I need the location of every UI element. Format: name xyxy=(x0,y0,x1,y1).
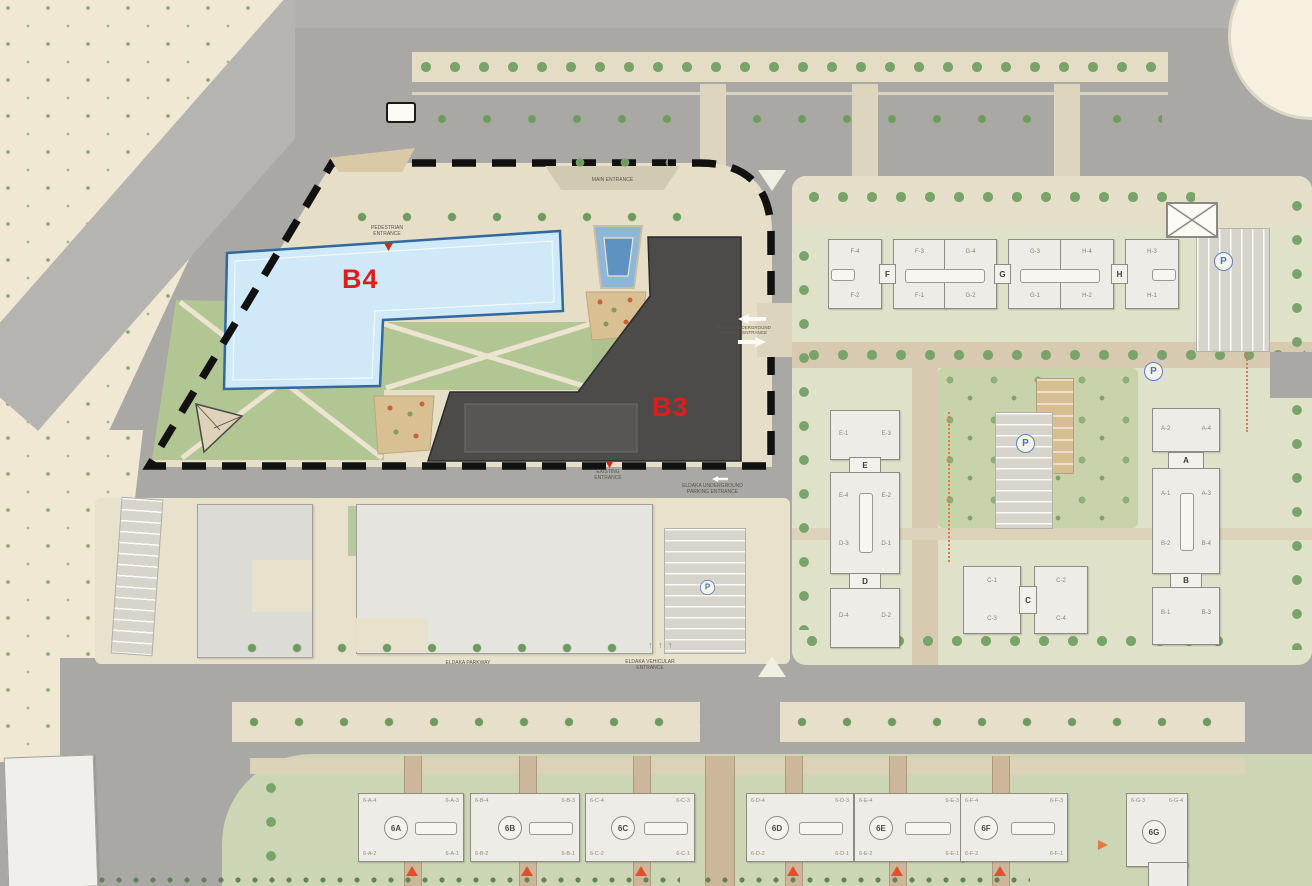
building-tab-d: D xyxy=(849,573,881,589)
eldaka-underground-label: ELDAKA UNDERGROUND PARKING ENTRANCE xyxy=(660,484,765,495)
building-wing-h-east: H-3 H-1 xyxy=(1125,239,1179,309)
top-road-upper-lane xyxy=(295,0,1312,28)
orange-dashes-1 xyxy=(1246,352,1248,432)
up-arrow-icon: ↑ xyxy=(668,640,673,650)
corridor-gh xyxy=(1020,269,1100,283)
top-median-trees xyxy=(412,52,1168,82)
office-parcel-palms xyxy=(230,636,650,660)
b4-label: B4 xyxy=(342,264,379,295)
envelope-icon xyxy=(1166,202,1218,238)
south-walkway xyxy=(705,756,735,886)
building-6a: 6-A-4 6-A-3 6-A-2 6-A-1 6A xyxy=(358,793,464,862)
building-6b: 6-B-4 6-B-3 6-B-2 6-B-1 6B xyxy=(470,793,580,862)
building-6d: 6-D-4 6-D-3 6-D-2 6-D-1 6D xyxy=(746,793,854,862)
building-e-d-middle: E-4 E-2 D-3 D-1 xyxy=(830,472,900,574)
flowerbed-south xyxy=(374,396,434,454)
bottom-bushes-west xyxy=(60,874,680,886)
building-6c-tag: 6C xyxy=(611,816,635,840)
building-e-north: E-1 E-3 xyxy=(830,410,900,460)
building-c-west: C-1 C-3 xyxy=(963,566,1021,634)
office-building-west-notch xyxy=(252,560,312,612)
up-arrow-icon: ↑ xyxy=(658,640,663,650)
building-b-south: B-1 B-3 xyxy=(1152,587,1220,645)
building-southwest xyxy=(4,754,99,886)
up-arrow-icon: ↑ xyxy=(648,640,653,650)
building-6e-tag: 6E xyxy=(869,816,893,840)
top-connector-3 xyxy=(1054,84,1080,176)
south-median-palms-east xyxy=(780,702,1245,742)
building-6g-extension xyxy=(1148,862,1188,886)
building-d-south: D-4 D-2 xyxy=(830,588,900,648)
building-wing-f-west: F-4 F-2 xyxy=(828,239,882,309)
top-connector-2 xyxy=(852,84,878,176)
site-plan: B4 B3 MAIN ENTRANCE PEDESTRIAN ENTRANCE … xyxy=(0,0,1312,886)
building-6b-tag: 6B xyxy=(498,816,522,840)
parkway-label: ELDAKA PARKWAY xyxy=(418,661,518,667)
east-parcel-right-trees xyxy=(1284,190,1310,650)
east-parcel-left-trees xyxy=(794,240,814,630)
parking-sign-office: P xyxy=(700,580,715,595)
building-6a-tag: 6A xyxy=(384,816,408,840)
building-tab-c: C xyxy=(1019,586,1037,614)
building-tab-a: A xyxy=(1168,452,1204,469)
vehicular-entrance-label: ELDAKA VEHICULAR ENTRANCE xyxy=(620,660,680,671)
building-a-north: A-2 A-4 xyxy=(1152,408,1220,452)
building-c-east: C-2 C-4 xyxy=(1034,566,1088,634)
building-6g-tag: 6G xyxy=(1142,820,1166,844)
building-b3-courtyard xyxy=(465,404,637,452)
building-6c: 6-C-4 6-C-3 6-C-2 6-C-1 6C xyxy=(585,793,695,862)
building-tab-g: G xyxy=(994,264,1011,284)
building-tab-f: F xyxy=(879,264,896,284)
parking-sign-central: P xyxy=(1016,434,1035,453)
building-6f-tag: 6F xyxy=(974,816,998,840)
existing-entrance-label: EXISTING ENTRANCE xyxy=(578,470,638,481)
building-6g: 6-G-3 6-G-4 6G xyxy=(1126,793,1188,867)
bottom-bushes-east xyxy=(700,874,1030,886)
building-6d-tag: 6D xyxy=(765,816,789,840)
b3-label: B3 xyxy=(652,392,689,423)
parking-lot-central xyxy=(995,412,1053,529)
south-parcel-walk xyxy=(250,758,1245,774)
corridor-fg xyxy=(905,269,985,283)
south-parcel-left-trees xyxy=(236,772,306,882)
east-parcel-north-trees xyxy=(800,186,1195,208)
water-feature-inner xyxy=(604,238,633,276)
building-6e: 6-E-4 6-E-3 6-E-2 6-E-1 6E xyxy=(854,793,964,862)
crosswalk-marker xyxy=(386,102,416,123)
ug-b3b4-label: B3 & B4 UNDERGROUND PARKING ENTRANCE xyxy=(708,325,780,335)
parking-sign-east: P xyxy=(1144,362,1163,381)
main-entrance-shrubs xyxy=(558,156,668,169)
east-internal-road-v xyxy=(912,368,938,665)
pedestrian-entrance-label: PEDESTRIAN ENTRANCE xyxy=(352,226,422,237)
building-tab-e: E xyxy=(849,457,881,473)
parking-lot-northeast xyxy=(1196,228,1270,352)
orange-dashes-2 xyxy=(948,412,950,562)
b3-b4-parcel xyxy=(130,150,790,480)
building-tab-b: B xyxy=(1170,573,1202,588)
parking-sign-ne: P xyxy=(1214,252,1233,271)
top-palm-row xyxy=(420,102,1162,136)
building-6f: 6-F-4 6-F-3 6-F-2 6-F-1 6F xyxy=(960,793,1068,862)
building-a-b-middle: A-1 A-3 B-2 B-4 xyxy=(1152,468,1220,574)
main-entrance-label: MAIN ENTRANCE xyxy=(545,178,680,184)
east-road-stub xyxy=(1270,352,1312,398)
south-median-palms-west xyxy=(232,702,700,742)
building-tab-h: H xyxy=(1111,264,1128,284)
